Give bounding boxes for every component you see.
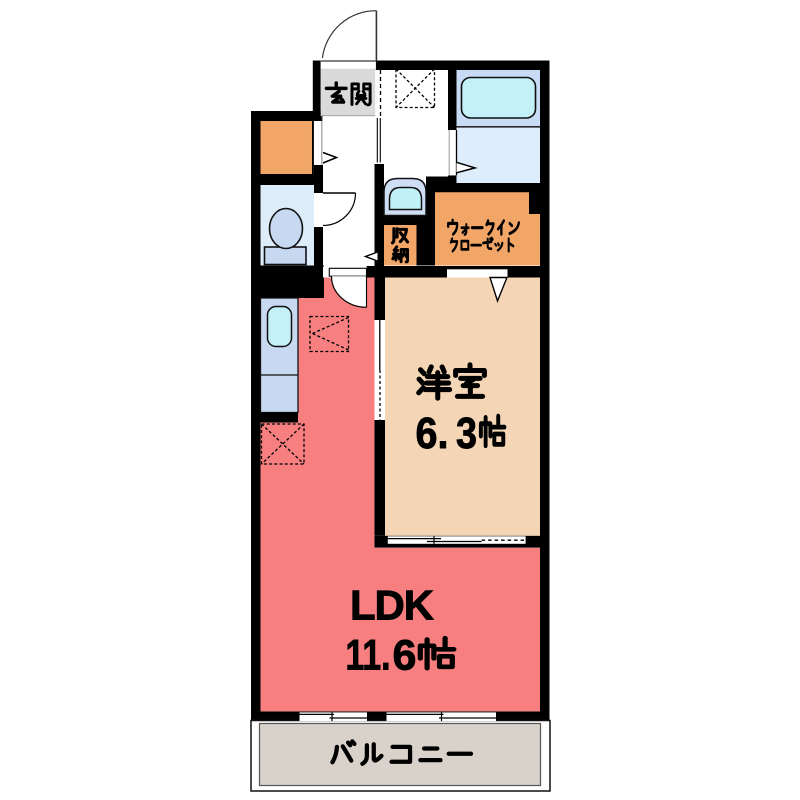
svg-text:LDK: LDK	[350, 582, 448, 629]
svg-text:11.: 11.	[346, 632, 391, 680]
svg-text:6.: 6.	[416, 409, 449, 458]
svg-text:3: 3	[456, 409, 477, 458]
svg-text:6: 6	[393, 632, 417, 680]
